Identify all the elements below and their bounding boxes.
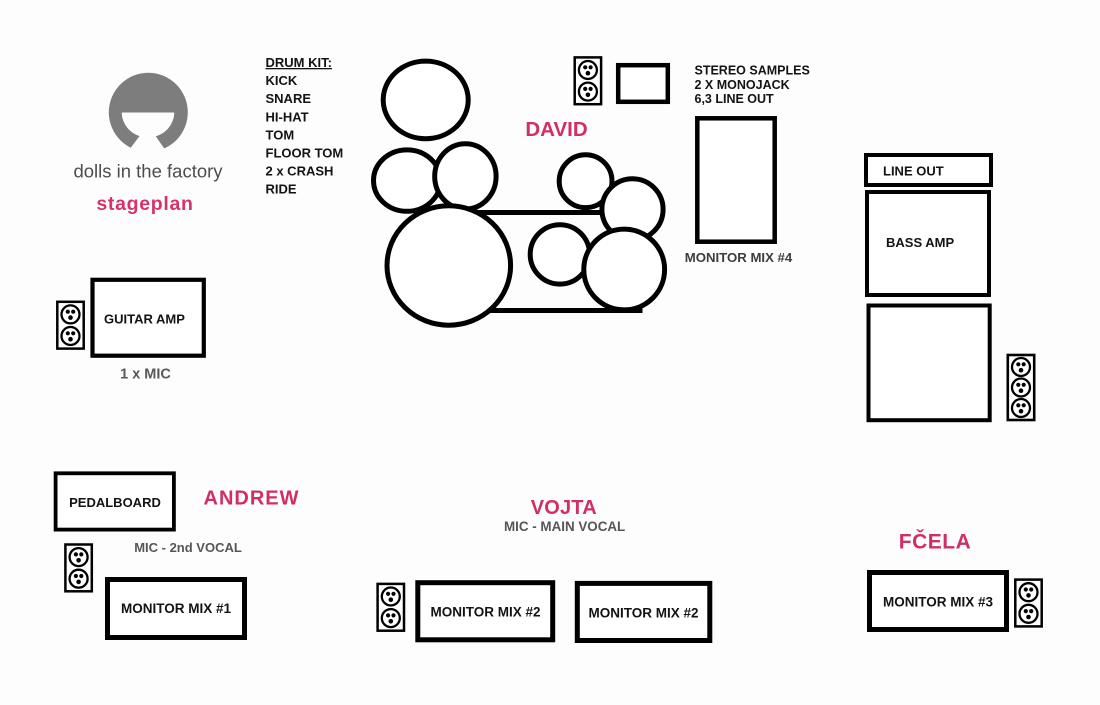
svg-text:stageplan: stageplan bbox=[96, 193, 193, 215]
svg-text:BASS AMP: BASS AMP bbox=[886, 235, 954, 250]
svg-text:1 x MIC: 1 x MIC bbox=[120, 367, 171, 383]
svg-text:VOJTA: VOJTA bbox=[531, 497, 597, 519]
svg-text:MONITOR MIX #2: MONITOR MIX #2 bbox=[430, 605, 540, 620]
svg-text:HI-HAT: HI-HAT bbox=[266, 109, 309, 124]
svg-text:SNARE: SNARE bbox=[266, 91, 312, 106]
svg-text:FLOOR TOM: FLOOR TOM bbox=[266, 146, 344, 161]
svg-text:TOM: TOM bbox=[266, 127, 295, 142]
svg-text:6,3 LINE OUT: 6,3 LINE OUT bbox=[695, 92, 775, 106]
svg-text:LINE OUT: LINE OUT bbox=[883, 164, 944, 179]
svg-text:MIC - MAIN VOCAL: MIC - MAIN VOCAL bbox=[504, 519, 625, 534]
svg-text:GUITAR AMP: GUITAR AMP bbox=[104, 312, 185, 327]
svg-text:PEDALBOARD: PEDALBOARD bbox=[69, 495, 161, 510]
svg-text:2 X MONOJACK: 2 X MONOJACK bbox=[695, 78, 790, 92]
svg-text:STEREO SAMPLES: STEREO SAMPLES bbox=[695, 64, 810, 78]
svg-text:FČELA: FČELA bbox=[899, 530, 972, 554]
svg-text:ANDREW: ANDREW bbox=[204, 488, 300, 510]
svg-text:MONITOR MIX #1: MONITOR MIX #1 bbox=[121, 601, 232, 616]
svg-text:DAVID: DAVID bbox=[525, 118, 587, 141]
svg-text:KICK: KICK bbox=[266, 73, 298, 88]
svg-text:2 x CRASH: 2 x CRASH bbox=[266, 164, 334, 179]
svg-text:DRUM KIT:: DRUM KIT: bbox=[266, 55, 332, 70]
svg-text:MONITOR MIX #2: MONITOR MIX #2 bbox=[588, 606, 698, 621]
svg-text:dolls in the factory: dolls in the factory bbox=[73, 161, 223, 182]
svg-text:MIC - 2nd VOCAL: MIC - 2nd VOCAL bbox=[134, 540, 242, 555]
svg-text:RIDE: RIDE bbox=[266, 182, 297, 197]
svg-text:MONITOR MIX #4: MONITOR MIX #4 bbox=[685, 250, 793, 265]
svg-text:MONITOR MIX #3: MONITOR MIX #3 bbox=[883, 595, 994, 610]
